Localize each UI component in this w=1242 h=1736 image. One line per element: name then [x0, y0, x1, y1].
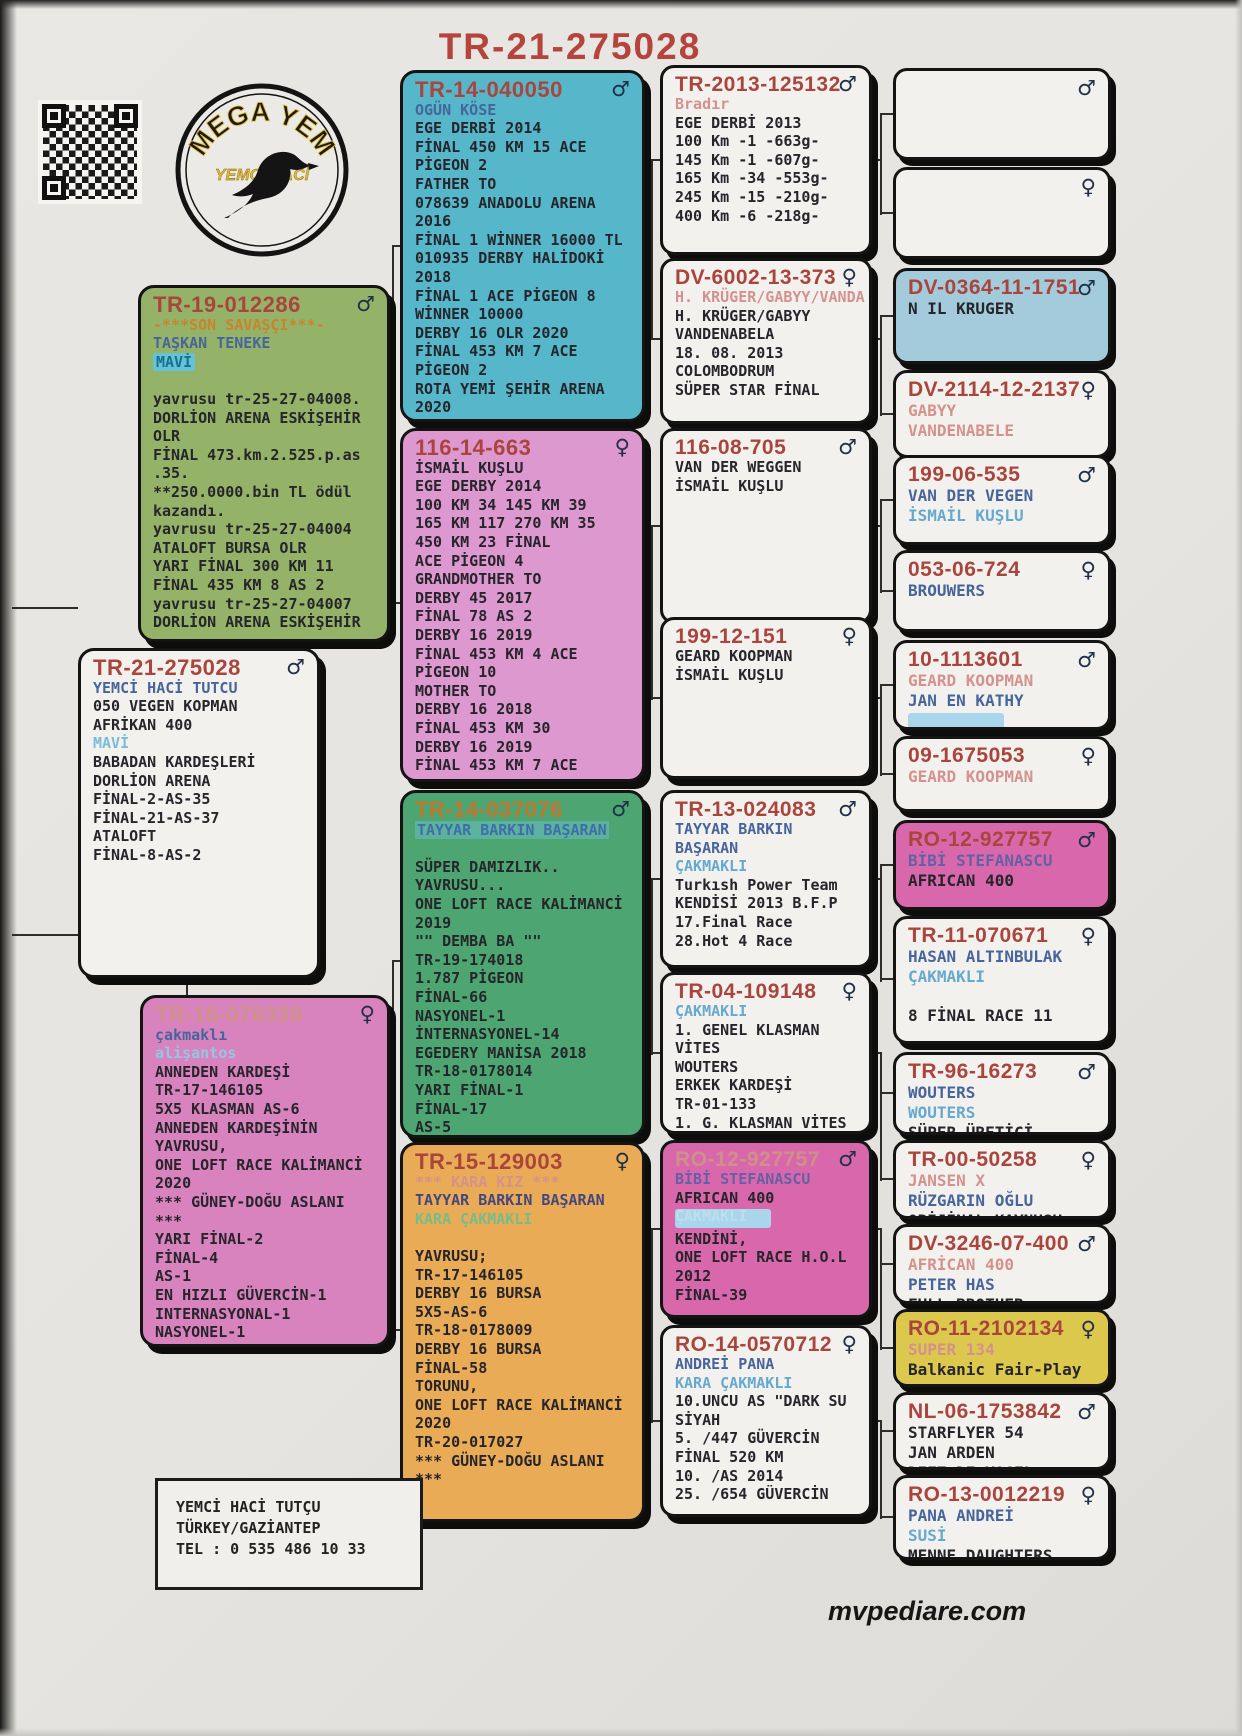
box-line: *** GÜNEY-DOĞU ASLANI — [155, 1193, 375, 1212]
box-line: 100 Km -1 -663g- — [675, 132, 857, 151]
box-empty_f: ♀ — [893, 167, 1111, 259]
ring-number: RO-11-2102134 — [908, 1319, 1098, 1339]
box-line: .35. — [153, 464, 375, 483]
box-line: YEMCİ HACİ TUTCU — [93, 679, 305, 698]
box-line: YARI FİNAL 300 KM 11 — [153, 557, 375, 576]
box-dv2114: ♀DV-2114-12-2137GABYYVANDENABELE — [893, 370, 1111, 458]
connector-line — [871, 338, 882, 340]
connector-line — [880, 1229, 882, 1350]
box-line: HASAN ALTINBULAK — [908, 947, 1098, 967]
box-line: DERBY 16 BURSA — [415, 1284, 630, 1303]
contact-box: YEMCİ HACİ TUTÇU TÜRKEY/GAZİANTEP TEL : … — [155, 1478, 423, 1590]
male-icon: ♂ — [1077, 650, 1096, 670]
box-line: Bradır — [675, 95, 857, 114]
connector-line — [651, 526, 653, 700]
box-line: EGE DERBİ 2014 — [415, 119, 630, 138]
box-line: YARI FİNAL-2 — [155, 1230, 375, 1249]
box-line: FİNAL 473.km.2.525.p.as — [153, 446, 375, 465]
ring-number: DV-6002-13-373 — [675, 269, 857, 287]
box-line: 100 KM 34 145 KM 39 — [415, 496, 630, 515]
contact-phone: TEL : 0 535 486 10 33 — [176, 1539, 412, 1560]
qr-finder-icon — [114, 104, 138, 128]
box-line: ONE LOFT RACE KALİMANCİ — [415, 1396, 630, 1415]
box-line: MAVİ — [153, 353, 195, 372]
connector-line — [871, 525, 882, 527]
box-line: FİNAL-21-AS-37 — [93, 809, 305, 828]
qr-finder-icon — [42, 176, 66, 200]
box-line: DORLİON ARENA ESKİŞEHİR — [153, 409, 375, 428]
box-line: ATALOFT BURSA OLR — [153, 539, 375, 558]
box-line: OLR — [153, 427, 375, 446]
female-icon: ♀ — [1081, 1319, 1096, 1339]
connector-line — [12, 934, 78, 936]
box-line: TR-18-0178009 — [415, 1321, 630, 1340]
ring-number: RO-14-0570712 — [675, 1336, 857, 1354]
box-line: SÜPER STAR FİNAL — [675, 381, 857, 400]
box-line: ANNEDEN KARDEŞİNİN — [155, 1119, 375, 1138]
box-b199_12_151: ♀199-12-151GEARD KOOPMANİSMAİL KUŞLU — [660, 617, 872, 779]
qr-finder-icon — [42, 104, 66, 128]
box-line: çakmaklı — [155, 1026, 375, 1045]
box-line: FİNAL-2-AS-35 — [93, 790, 305, 809]
box-line: GEARD KOOPMAN — [675, 647, 857, 666]
box-line: TR-20-017027 — [415, 1433, 630, 1452]
box-line: 2020 — [415, 398, 630, 417]
contact-location: TÜRKEY/GAZİANTEP — [176, 1518, 412, 1539]
box-line: **250.0000.bin TL ödül — [153, 483, 375, 502]
box-line: DERBY 16 OLR 2020 — [415, 324, 630, 343]
box-line: JAN EN KATHY — [908, 691, 1098, 711]
box-line: MAVİ — [93, 734, 305, 753]
box-dv0364: ♂DV-0364-11-1751N IL KRUGER — [893, 268, 1111, 364]
photo-edge-left — [0, 0, 17, 1736]
ring-number: TR-96-16273 — [908, 1062, 1098, 1082]
box-line: KENDİSİ 2013 B.F.P — [675, 894, 857, 913]
box-line: ÇAKMAKLI — [675, 1002, 857, 1021]
male-icon: ♂ — [1077, 278, 1096, 298]
box-line: RÜZGARIN OĞLU — [908, 1191, 1098, 1211]
box-line: WOUTERS — [675, 1058, 857, 1077]
ring-number: TR-15-129003 — [415, 1153, 630, 1172]
box-line: TORUNU, — [415, 1377, 630, 1396]
box-line: 2022 — [675, 1132, 857, 1134]
page-title: TR-21-275028 — [360, 26, 780, 68]
box-line: 28.Hot 4 Race — [675, 932, 857, 951]
box-b053_06_724: ♀053-06-724BROUWERS — [893, 550, 1111, 632]
box-line: DERBY 16 BURSA — [415, 1340, 630, 1359]
box-line: İSMAİL KUŞLU — [415, 459, 630, 478]
connector-line — [392, 961, 394, 1332]
box-line: FİNAL 78 AS 2 — [415, 607, 630, 626]
box-ro12_big: ♂RO-12-927757BİBİ STEFANASCUAFRICAN 400Ç… — [660, 1140, 872, 1318]
connector-line — [880, 1421, 882, 1519]
box-line: ÇAKMAKLI — [908, 967, 1098, 987]
connector-line — [871, 878, 882, 880]
box-line: alişantos — [155, 1044, 375, 1063]
box-line: FİNAL-17 — [415, 1100, 630, 1119]
female-icon: ♀ — [1081, 560, 1096, 580]
female-icon: ♀ — [615, 438, 630, 457]
ring-number: RO-13-0012219 — [908, 1485, 1098, 1505]
box-dv3246: ♂DV-3246-07-400AFRİCAN 400PETER HASFULL … — [893, 1224, 1111, 1304]
box-line: 2016 — [415, 212, 630, 231]
female-icon: ♀ — [1081, 1150, 1096, 1170]
box-line: 165 KM 117 270 KM 35 — [415, 514, 630, 533]
box-line: PİGEON 10 — [415, 663, 630, 682]
box-line: WOUTERS — [908, 1103, 1098, 1123]
box-line: NASYONEL-1 — [155, 1323, 375, 1342]
box-tr13: ♂TR-13-024083TAYYAR BARKINBAŞARANÇAKMAKL… — [660, 790, 872, 968]
box-line: VİTES — [675, 1039, 857, 1058]
box-line: FİNAL-66 — [415, 988, 630, 1007]
box-b116_14_663: ♀116-14-663İSMAİL KUŞLUEGE DERBY 2014100… — [400, 428, 645, 782]
box-line: 8 FİNAL RACE 11 — [908, 1006, 1098, 1025]
box-line: TAYYAR BARKIN BAŞARAN — [415, 1191, 630, 1210]
male-icon: ♂ — [1077, 1402, 1096, 1422]
box-line: ANDREİ PANA — [675, 1355, 857, 1374]
ring-number: 053-06-724 — [908, 560, 1098, 580]
contact-name: YEMCİ HACİ TUTÇU — [176, 1497, 412, 1518]
qr-code — [38, 100, 142, 204]
box-line: 010935 DERBY HALİDOKİ — [415, 249, 630, 268]
box-line: FİNAL 453 KM 4 ACE — [415, 645, 630, 664]
ring-number: RO-12-927757 — [675, 1151, 857, 1169]
box-line: DERBY 16 2018 — [415, 700, 630, 719]
box-line: ACE PİGEON 4 — [415, 552, 630, 571]
connector-line — [871, 1420, 882, 1422]
ring-number: RO-12-927757 — [908, 830, 1098, 850]
box-line: DERBY 45 2017 — [415, 589, 630, 608]
connector-line — [651, 1229, 653, 1423]
box-line — [908, 987, 1098, 1006]
box-nl06: ♂NL-06-1753842STARFLYER 54JAN ARDENDIET … — [893, 1392, 1111, 1470]
female-icon: ♀ — [842, 982, 857, 1000]
box-line: TAŞKAN TENEKE — [153, 334, 375, 353]
box-line: AS-5 — [415, 1118, 630, 1137]
box-line: WOUTERS — [908, 1083, 1098, 1103]
box-line: FİNAL 520 KM — [675, 1448, 857, 1467]
box-line: İSMAİL KUŞLU — [675, 666, 857, 685]
box-line: FİNAL 1 ACE PİGEON 8 — [415, 287, 630, 306]
male-icon: ♂ — [838, 800, 857, 818]
box-line: AS-1 — [155, 1267, 375, 1286]
connector-line — [12, 607, 78, 609]
female-icon: ♀ — [1081, 1485, 1096, 1505]
box-line: 2012 — [675, 1267, 857, 1286]
box-line: 10. /AS 2014 — [675, 1467, 857, 1486]
box-line: ÇAKMAKLI — [675, 857, 857, 876]
box-line: 400 Km -6 -218g- — [675, 207, 857, 226]
box-dv6002: ♀DV-6002-13-373H. KRÜGER/GABYY/VANDAH. K… — [660, 258, 872, 424]
box-line: TR-19-174018 — [415, 951, 630, 970]
box-line: DERBY 16 2019 — [415, 626, 630, 645]
box-b199_06_535: ♂199-06-535VAN DER VEGENİSMAİL KUŞLU — [893, 455, 1111, 545]
ring-number: TR-14-037076 — [415, 801, 630, 820]
box-line: FİNAL 453 KM 7 ACE — [415, 342, 630, 361]
box-line: NASYONEL-1 — [415, 1007, 630, 1026]
female-icon: ♀ — [360, 1005, 375, 1024]
box-line: 2018 — [415, 268, 630, 287]
box-line: 5X5-AS-6 — [415, 1303, 630, 1322]
box-line: FİNAL 435 KM 8 AS 2 — [153, 576, 375, 595]
box-line: ORİJİNAL KAYNUSU — [908, 1211, 1098, 1219]
box-line: VANDENABELE — [908, 421, 1098, 441]
box-line: Turkısh Power Team — [675, 876, 857, 895]
box-line: 2020 — [155, 1174, 375, 1193]
ring-number: DV-3246-07-400 — [908, 1234, 1098, 1254]
box-ro13: ♀RO-13-0012219PANA ANDREİSUSİMENNE DAUGH… — [893, 1475, 1111, 1560]
website-footer: mvpediare.com — [828, 1596, 1026, 1627]
ring-number: 199-06-535 — [908, 465, 1098, 485]
box-line: SÜPER ÜRETİCİ — [908, 1123, 1098, 1135]
box-line: İSMAİL KUŞLU — [675, 477, 857, 496]
box-tr14040050: ♂TR-14-040050OGÜN KÖSEEGE DERBİ 2014FİNA… — [400, 70, 645, 422]
box-line: yavrusu tr-25-27-04007 — [153, 595, 375, 614]
female-icon: ♀ — [1081, 746, 1096, 766]
box-tr19: ♂TR-19-012286-***SON SAVAŞÇI***-TAŞKAN T… — [138, 285, 390, 642]
box-line: TAYYAR BARKIN — [675, 820, 857, 839]
box-line: FULL BROTHER — [908, 1295, 1098, 1304]
box-line: FİNAL 453 KM 7 ACE — [415, 756, 630, 775]
box-line: GEARD KOOPMAN — [908, 767, 1098, 787]
box-line: GRANDMOTHER TO — [415, 570, 630, 589]
box-line: N IL KRUGER — [908, 299, 1098, 319]
box-line: PANA ANDREİ — [908, 1506, 1098, 1526]
female-icon: ♀ — [842, 1335, 857, 1353]
box-line: MENNE DAUGHTERS — [908, 1546, 1098, 1560]
box-line: TR-01-133 — [675, 1095, 857, 1114]
box-line: COLOMBODRUM — [675, 362, 857, 381]
box-line: DIET DE VOGEL — [908, 1463, 1098, 1470]
female-icon: ♀ — [1081, 177, 1096, 197]
box-line: AFRİCAN 400 — [908, 1255, 1098, 1275]
box-line: TR-17-146105 — [155, 1081, 375, 1100]
box-line: DORLİON ARENA — [93, 772, 305, 791]
box-line: ONE LOFT RACE KALİMANCİ — [415, 895, 630, 914]
ring-number: 10-1113601 — [908, 650, 1098, 670]
box-line: ATALOFT — [93, 827, 305, 846]
box-line: *** KARA KIZ *** — [415, 1173, 630, 1192]
box-line: SUPER 134 — [908, 1340, 1098, 1360]
box-b10_1113601: ♂10-1113601GEARD KOOPMANJAN EN KATHY — [893, 640, 1111, 730]
male-icon: ♂ — [1077, 830, 1096, 850]
box-line: PETER HAS — [908, 1275, 1098, 1295]
connector-line — [880, 500, 882, 593]
box-tr2013: ♂TR-2013-125132BradırEGE DERBİ 2013100 K… — [660, 65, 872, 255]
connector-line — [651, 160, 653, 340]
box-line: FİNAL 453 KM 30 — [415, 719, 630, 738]
box-line: ONE LOFT RACE KALİMANCİ — [155, 1156, 375, 1175]
box-line: FİNAL-58 — [415, 1359, 630, 1378]
ring-number: 116-14-663 — [415, 439, 630, 458]
box-line: AFRICAN 400 — [675, 1189, 857, 1208]
box-line: FİNAL-4 — [155, 1249, 375, 1268]
box-line: yavrusu tr-25-27-04008. — [153, 390, 375, 409]
box-line: OGÜN KÖSE — [415, 101, 630, 120]
box-line: *** — [155, 1212, 375, 1231]
connector-line — [880, 1053, 882, 1181]
male-icon: ♂ — [611, 80, 630, 99]
box-line: YAVRUSU; — [415, 1247, 630, 1266]
box-line: FİNAL-8-AS-2 — [93, 846, 305, 865]
box-line: YAVRUSU... — [415, 876, 630, 895]
box-line: "" DEMBA BA "" — [415, 932, 630, 951]
box-line: ERKEK KARDEŞİ — [675, 1076, 857, 1095]
photo-edge-right — [1235, 0, 1242, 1736]
box-line: DORLİON ARENA ESKİŞEHİR — [153, 613, 375, 632]
box-line: BABADAN KARDEŞLERİ — [93, 753, 305, 772]
box-line — [908, 713, 1004, 730]
male-icon: ♂ — [356, 295, 375, 314]
box-line: SİYAH — [675, 1411, 857, 1430]
ring-number: TR-2013-125132 — [675, 76, 857, 94]
connector-line — [880, 865, 882, 982]
box-line: FİNAL 450 KM 15 ACE — [415, 138, 630, 157]
box-line: KARA ÇAKMAKLI — [675, 1374, 857, 1393]
box-b116_08_705: ♂116-08-705VAN DER WEGGENİSMAİL KUŞLU — [660, 428, 872, 624]
box-line: H. KRÜGER/GABYY/VANDA — [675, 288, 857, 307]
ring-number: TR-16-076339 — [155, 1006, 375, 1025]
box-line: İNTERNASYONEL-14 — [415, 1025, 630, 1044]
box-line: VANDENABELA — [675, 325, 857, 344]
male-icon: ♂ — [1077, 78, 1096, 98]
box-line: SÜPER DAMIZLIK.. — [415, 858, 630, 877]
box-line: TR-18-0178014 — [415, 1062, 630, 1081]
box-line: TR-17-146105 — [415, 1266, 630, 1285]
box-line: 1. G. KLASMAN VİTES — [675, 1114, 857, 1133]
box-line: *** GÜNEY-DOĞU ASLANI — [415, 1452, 630, 1471]
box-tr11: ♀TR-11-070671HASAN ALTINBULAKÇAKMAKLI8 F… — [893, 916, 1111, 1044]
box-line: EN HIZLI GÜVERCİN-1 — [155, 1286, 375, 1305]
box-line — [415, 839, 630, 858]
box-line: BAŞARAN — [675, 839, 857, 858]
box-line: AFRİKAN 400 — [93, 716, 305, 735]
box-line: INTERNASYONAL-1 — [155, 1305, 375, 1324]
ring-number: DV-0364-11-1751 — [908, 278, 1098, 298]
box-line: YARI FİNAL-1 — [415, 1081, 630, 1100]
box-tr14037076: ♂TR-14-037076TAYYAR BARKIN BAŞARANSÜPER … — [400, 790, 645, 1138]
box-line: TAYYAR BARKIN BAŞARAN — [415, 821, 609, 840]
connector-line — [880, 114, 882, 215]
box-line: ANNEDEN KARDEŞİ — [155, 1063, 375, 1082]
ring-number: TR-13-024083 — [675, 801, 857, 819]
box-line: H. KRÜGER/GABYY — [675, 307, 857, 326]
box-line: JAN ARDEN — [908, 1443, 1098, 1463]
box-line: BROUWERS — [908, 581, 1098, 601]
box-line — [415, 1228, 630, 1247]
connector-line — [871, 1052, 882, 1054]
box-line: 145 Km -1 -607g- — [675, 151, 857, 170]
box-line: STARFLYER 54 — [908, 1423, 1098, 1443]
ring-number: TR-21-275028 — [93, 659, 305, 678]
box-line: kazandı. — [153, 502, 375, 521]
box-line: BİBİ STEFANASCU — [908, 851, 1098, 871]
box-line: 25. /654 GÜVERCİN — [675, 1485, 857, 1504]
female-icon: ♀ — [1081, 380, 1096, 400]
box-tr04: ♀TR-04-109148ÇAKMAKLI1. GENEL KLASMANVİT… — [660, 972, 872, 1134]
box-line: VAN DER VEGEN — [908, 486, 1098, 506]
box-ro11: ♀RO-11-2102134SUPER 134Balkanic Fair-Pla… — [893, 1309, 1111, 1387]
box-line: KARA ÇAKMAKLI — [415, 1210, 630, 1229]
box-line: ROTA YEMİ ŞEHİR ARENA — [415, 380, 630, 399]
box-ro12_small: ♂RO-12-927757BİBİ STEFANASCUAFRICAN 400 — [893, 820, 1111, 910]
male-icon: ♂ — [838, 1150, 857, 1168]
ring-number: 09-1675053 — [908, 746, 1098, 766]
male-icon: ♂ — [1077, 1234, 1096, 1254]
box-line: EGEDERY MANİSA 2018 — [415, 1044, 630, 1063]
ring-number: NL-06-1753842 — [908, 1402, 1098, 1422]
box-line: Balkanic Fair-Play — [908, 1360, 1098, 1380]
box-ro14: ♀RO-14-0570712ANDREİ PANAKARA ÇAKMAKLI10… — [660, 1325, 872, 1517]
box-line: 2019 — [415, 914, 630, 933]
box-line: VAN DER WEGGEN — [675, 458, 857, 477]
box-main: ♂TR-21-275028YEMCİ HACİ TUTCU050 VEGEN K… — [78, 648, 320, 978]
ring-number: TR-04-109148 — [675, 983, 857, 1001]
box-line: 245 Km -15 -210g- — [675, 188, 857, 207]
box-tr00: ♀TR-00-50258JANSEN XRÜZGARIN OĞLUORİJİNA… — [893, 1140, 1111, 1219]
box-line: MOTHER TO — [415, 682, 630, 701]
box-line: 5X5 KLASMAN AS-6 — [155, 1100, 375, 1119]
box-line: 078639 ANADOLU ARENA — [415, 194, 630, 213]
photo-edge-top — [0, 0, 1242, 9]
female-icon: ♀ — [842, 268, 857, 286]
ring-number: 116-08-705 — [675, 439, 857, 457]
box-line: KENDİNİ, — [675, 1230, 857, 1249]
box-line: 1.787 PİGEON — [415, 969, 630, 988]
female-icon: ♀ — [1081, 926, 1096, 946]
male-icon: ♂ — [611, 800, 630, 819]
box-line: 165 Km -34 -553g- — [675, 169, 857, 188]
box-line: PİGEON 2 — [415, 156, 630, 175]
box-line: GABYY — [908, 401, 1098, 421]
connector-line — [651, 879, 653, 1055]
box-line: SUSİ — [908, 1526, 1098, 1546]
box-empty_m: ♂ — [893, 68, 1111, 160]
box-line: GEARD KOOPMAN — [908, 671, 1098, 691]
male-icon: ♂ — [1077, 465, 1096, 485]
connector-line — [871, 1228, 882, 1230]
qr-pattern — [43, 105, 137, 199]
ring-number: TR-19-012286 — [153, 296, 375, 315]
box-line: 2020 — [415, 1414, 630, 1433]
box-line: AFRICAN 400 — [908, 871, 1098, 891]
box-line: 050 VEGEN KOPMAN — [93, 697, 305, 716]
connector-line — [871, 159, 882, 161]
ring-number: TR-00-50258 — [908, 1150, 1098, 1170]
box-line: BİBİ STEFANASCU — [675, 1170, 857, 1189]
box-line — [153, 371, 375, 390]
box-line: 1. GENEL KLASMAN — [675, 1021, 857, 1040]
box-line: 5. /447 GÜVERCİN — [675, 1429, 857, 1448]
ring-number: TR-11-070671 — [908, 926, 1098, 946]
box-line: 18. 08. 2013 — [675, 344, 857, 363]
box-line: 10.UNCU AS "DARK SU — [675, 1392, 857, 1411]
male-icon: ♂ — [1077, 1062, 1096, 1082]
connector-line — [880, 316, 882, 416]
ring-number: DV-2114-12-2137 — [908, 380, 1098, 400]
box-line: *** — [415, 1470, 630, 1489]
female-icon: ♀ — [842, 627, 857, 645]
male-icon: ♂ — [286, 658, 305, 677]
box-line: FATHER TO — [415, 175, 630, 194]
box-line: İSMAİL KUŞLU — [908, 506, 1098, 526]
box-line: EGE DERBİ 2013 — [675, 114, 857, 133]
box-line: DERBY 16 2019 — [415, 738, 630, 757]
ring-number: TR-14-040050 — [415, 81, 630, 100]
connector-line — [392, 246, 394, 606]
box-b09_1675053: ♀09-1675053GEARD KOOPMAN — [893, 736, 1111, 812]
box-line: 450 KM 23 FİNAL — [415, 533, 630, 552]
